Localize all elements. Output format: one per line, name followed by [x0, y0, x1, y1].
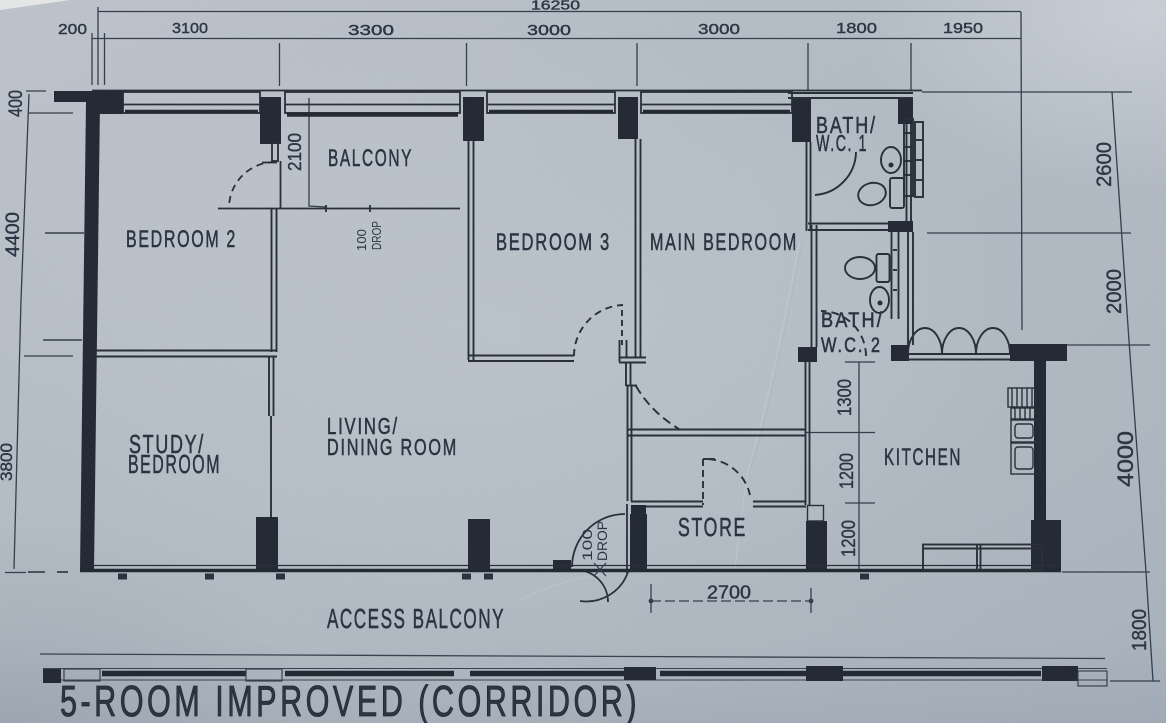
svg-text:1200: 1200: [837, 453, 858, 489]
svg-text:W.C. 2: W.C. 2: [821, 334, 882, 357]
svg-text:3100: 3100: [172, 20, 208, 37]
svg-text:ACCESS BALCONY: ACCESS BALCONY: [327, 603, 505, 634]
svg-text:3000: 3000: [527, 22, 571, 39]
svg-text:BEDROOM 3: BEDROOM 3: [496, 229, 611, 256]
svg-text:3800: 3800: [0, 443, 16, 481]
svg-text:1950: 1950: [943, 20, 983, 37]
svg-text:BEDROOM 2: BEDROOM 2: [126, 226, 237, 253]
svg-text:200: 200: [58, 21, 87, 38]
svg-text:DROP: DROP: [594, 521, 610, 561]
svg-text:1800: 1800: [1129, 609, 1151, 651]
svg-text:BALCONY: BALCONY: [328, 145, 413, 172]
svg-text:100: 100: [579, 529, 595, 561]
svg-text:2700: 2700: [707, 582, 751, 603]
svg-text:KITCHEN: KITCHEN: [884, 444, 962, 471]
svg-text:400: 400: [6, 90, 27, 117]
svg-text:2000: 2000: [1103, 269, 1126, 314]
svg-text:3000: 3000: [698, 21, 740, 38]
svg-text:MAIN BEDROOM: MAIN BEDROOM: [650, 229, 798, 256]
svg-text:2100: 2100: [285, 133, 305, 171]
svg-text:3300: 3300: [348, 22, 394, 39]
svg-text:2600: 2600: [1093, 142, 1116, 187]
svg-text:4400: 4400: [3, 212, 24, 257]
svg-text:1300: 1300: [835, 379, 856, 416]
svg-text:BATH/: BATH/: [821, 309, 884, 332]
svg-text:5-ROOM IMPROVED (CORRIDOR): 5-ROOM IMPROVED (CORRIDOR): [60, 677, 640, 723]
svg-text:W.C. 1: W.C. 1: [816, 130, 868, 156]
svg-text:DINING ROOM: DINING ROOM: [327, 434, 458, 460]
svg-text:STORE: STORE: [678, 512, 747, 542]
svg-text:16250: 16250: [531, 0, 580, 13]
svg-text:100: 100: [354, 229, 369, 251]
svg-text:4000: 4000: [1113, 431, 1138, 487]
svg-text:1800: 1800: [836, 20, 877, 37]
svg-text:DROP: DROP: [369, 221, 384, 250]
svg-text:BEDROOM: BEDROOM: [128, 449, 221, 479]
svg-text:1200: 1200: [839, 520, 860, 557]
